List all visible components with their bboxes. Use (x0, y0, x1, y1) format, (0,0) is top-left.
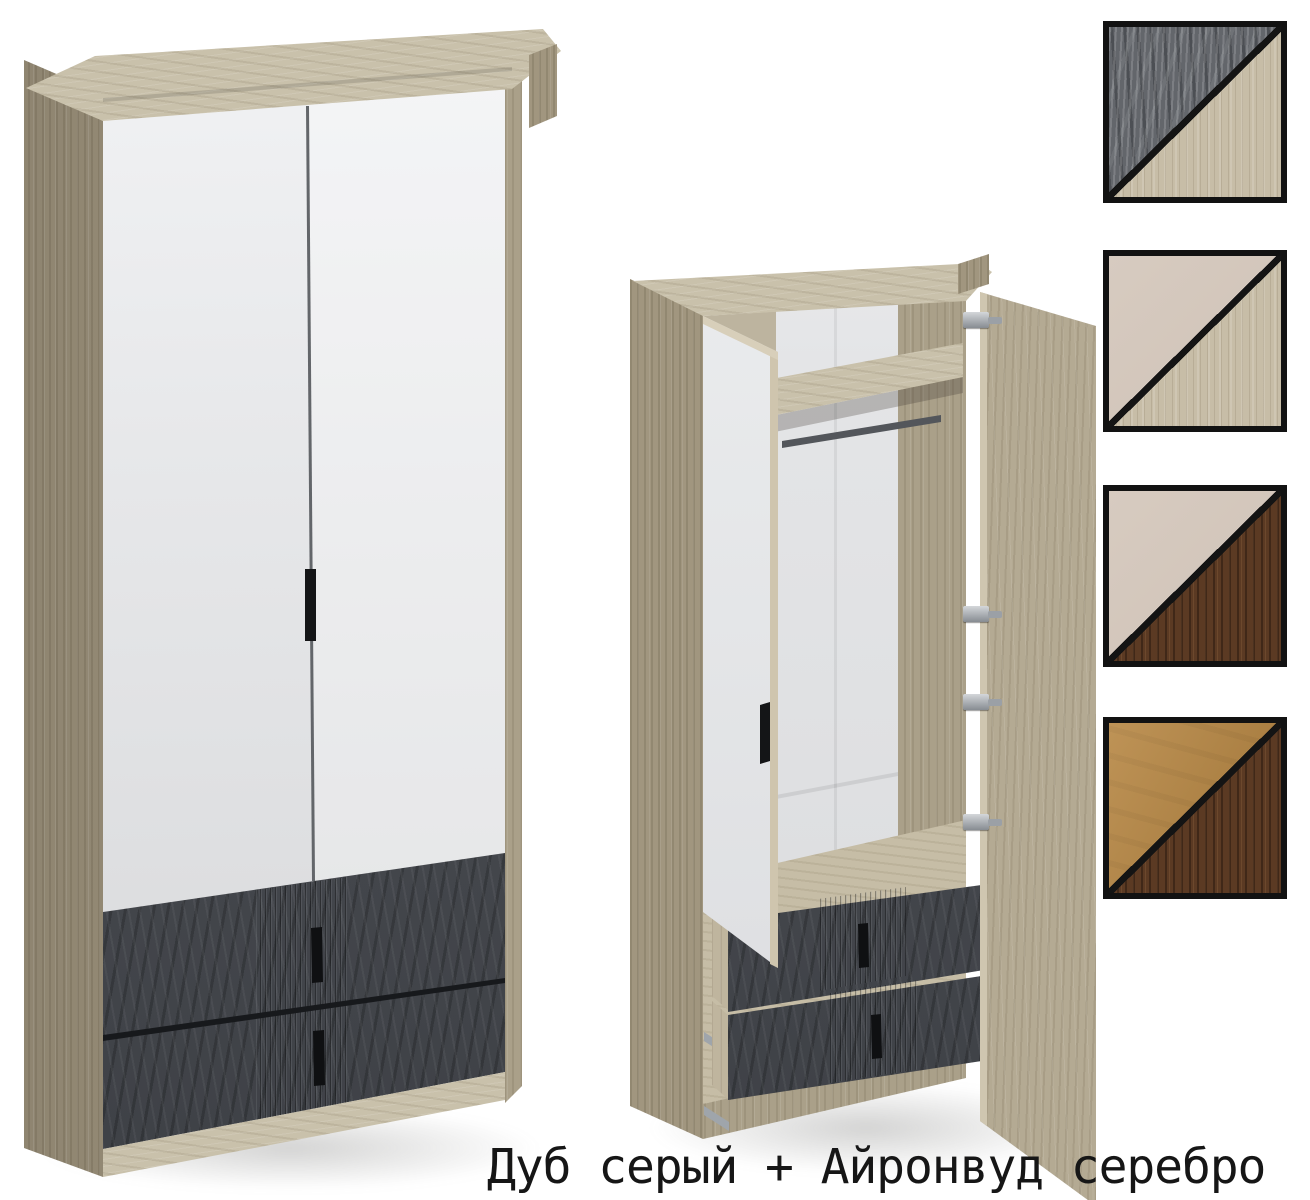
swatch-cashmere-oak-dark[interactable] (1103, 485, 1287, 667)
swatch-diagonal-divider (1109, 723, 1281, 893)
hinge-icon (963, 814, 989, 830)
hinge-icon (963, 312, 989, 328)
swatch-diagonal-divider (1109, 27, 1281, 197)
swatch-diagonal-divider (1109, 256, 1281, 426)
hinge-icon (963, 694, 989, 710)
swatch-diagonal-divider (1109, 491, 1281, 661)
swatch-camel-oak-dark[interactable] (1103, 717, 1287, 899)
caption: Дуб серый + Айронвуд серебро (487, 1140, 1265, 1195)
hinge-icon (963, 606, 989, 622)
swatch-cashmere-oak-grey[interactable] (1103, 250, 1287, 432)
swatch-ironwood-silver-oak-grey[interactable] (1103, 21, 1287, 203)
product-image: Дуб серый + Айронвуд серебро (0, 0, 1310, 1200)
